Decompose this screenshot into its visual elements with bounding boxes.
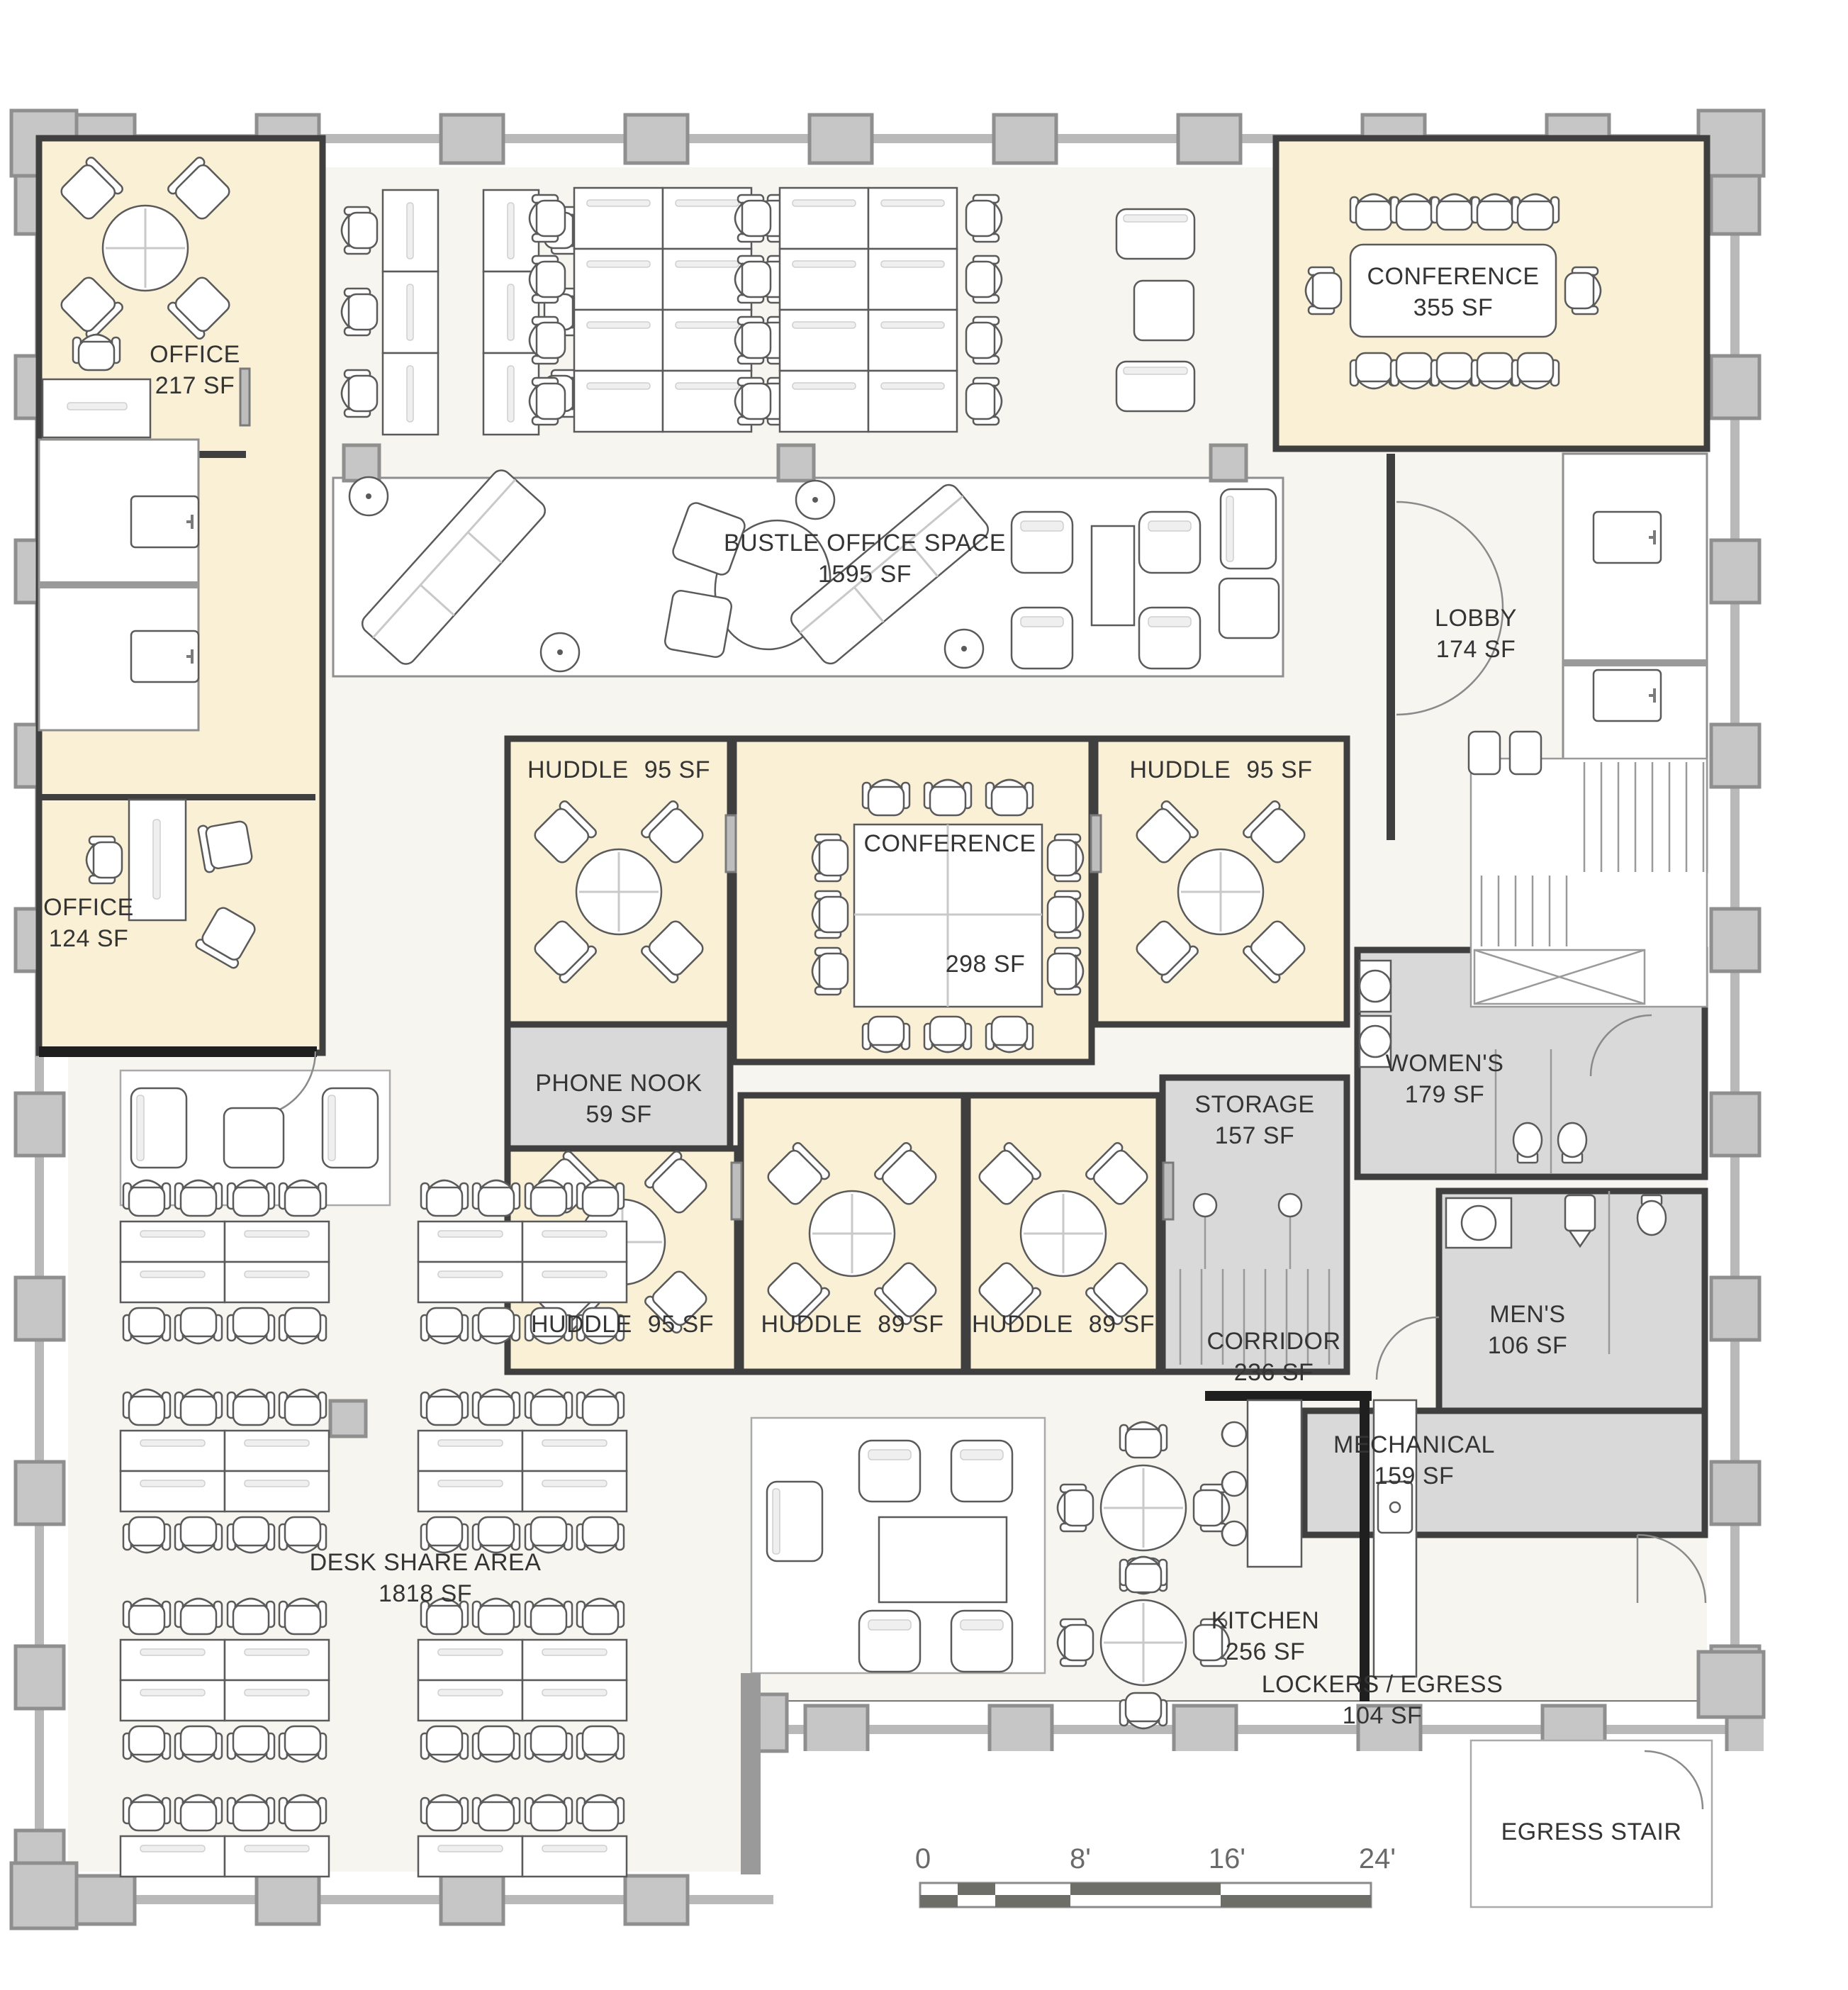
- room-label-lobby: LOBBY174 SF: [1370, 603, 1582, 665]
- room-label-egress-stair: EGRESS STAIR: [1471, 1816, 1712, 1848]
- room-label-bustle: BUSTLE OFFICE SPACE1595 SF: [681, 527, 1049, 590]
- room-label-conference-298-area: 298 SF: [883, 949, 1088, 980]
- room-label-huddle-b3: HUDDLE89 SF: [968, 1309, 1159, 1340]
- room-label-corridor: CORRIDOR236 SF: [1164, 1326, 1384, 1388]
- room-label-lockers: LOCKERS / EGRESS104 SF: [1205, 1669, 1559, 1731]
- room-label-kitchen: KITCHEN256 SF: [1127, 1605, 1404, 1667]
- scale-tick-16: 16': [1202, 1843, 1252, 1875]
- room-label-phone-nook: PHONE NOOK59 SF: [508, 1068, 730, 1130]
- room-label-storage: STORAGE157 SF: [1163, 1089, 1347, 1151]
- scale-tick-24: 24': [1353, 1843, 1402, 1875]
- room-label-mechanical: MECHANICAL159 SF: [1272, 1429, 1556, 1492]
- room-label-huddle-b2: HUDDLE89 SF: [741, 1309, 964, 1340]
- room-label-huddle-top-left: HUDDLE95 SF: [508, 754, 730, 786]
- room-label-mens: MEN'S106 SF: [1411, 1299, 1645, 1361]
- room-label-womens: WOMEN'S179 SF: [1338, 1048, 1551, 1110]
- room-label-desk-share: DESK SHARE AREA1818 SF: [248, 1547, 603, 1609]
- scale-tick-8: 8': [1059, 1843, 1102, 1875]
- room-label-conference-355: CONFERENCE355 SF: [1310, 261, 1596, 323]
- room-label-huddle-top-right: HUDDLE95 SF: [1095, 754, 1347, 786]
- room-label-office-217: OFFICE217 SF: [85, 339, 305, 401]
- room-label-huddle-b1: HUDDLE95 SF: [508, 1309, 737, 1340]
- room-label-conference-298-name: CONFERENCE: [826, 828, 1074, 859]
- room-label-office-124: OFFICE124 SF: [21, 892, 156, 954]
- floor-plan: OFFICE217 SF CONFERENCE355 SF BUSTLE OFF…: [0, 0, 1848, 1990]
- scale-tick-0: 0: [909, 1843, 937, 1875]
